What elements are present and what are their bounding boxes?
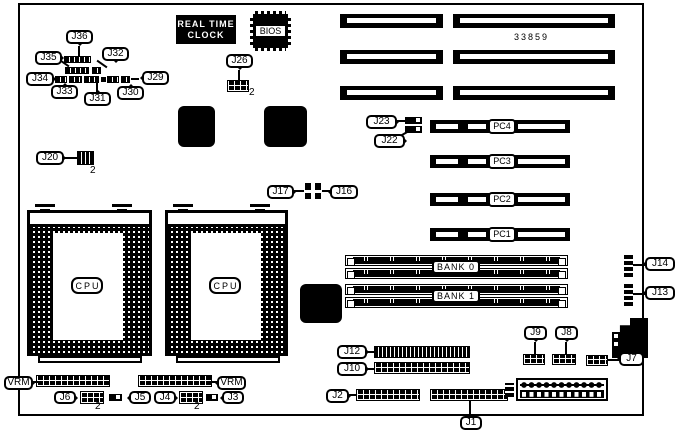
- callout-j22: J22: [374, 134, 405, 148]
- connector-j7: [586, 355, 608, 366]
- pin2-j26: 2: [249, 88, 255, 98]
- isa-slot-1-right: [453, 14, 615, 28]
- callout-vrm-left: VRM: [4, 376, 33, 390]
- callout-j9: J9: [524, 326, 547, 340]
- connector-j16: [315, 183, 321, 199]
- pci-label-pc3: PC3: [488, 154, 516, 169]
- connector-j10: [374, 362, 470, 374]
- callout-j8: J8: [555, 326, 578, 340]
- callout-j29: J29: [142, 71, 169, 85]
- callout-j33: J33: [51, 85, 78, 99]
- connector-j8: [552, 354, 576, 365]
- isa-slot-2-left: [340, 50, 443, 64]
- pin2-j6: 2: [95, 402, 101, 412]
- rtc-line1: REAL TIME: [177, 19, 234, 30]
- connector-j17: [305, 183, 311, 199]
- pci-label-pc4: PC4: [488, 119, 516, 134]
- isa-slot-1-left: [340, 14, 443, 28]
- pci-label-pc1: PC1: [488, 227, 516, 242]
- pin2-j20: 2: [90, 166, 96, 176]
- callout-j30: J30: [117, 86, 144, 100]
- isa-slot-3-right: [453, 86, 615, 100]
- callout-j14: J14: [645, 257, 675, 271]
- connector-j26: [227, 80, 249, 92]
- connector-j5: [109, 394, 122, 401]
- connector-vrm-left: [36, 375, 110, 387]
- connector-j2: [356, 389, 420, 401]
- connector-j36: [64, 56, 91, 63]
- callout-j7: J7: [619, 352, 644, 366]
- callout-j17: J17: [267, 185, 294, 199]
- connector-row-b: [69, 76, 82, 83]
- bios-label: BIOS: [255, 25, 286, 37]
- pin2-j4: 2: [194, 402, 200, 412]
- callout-j26: J26: [226, 54, 253, 68]
- motherboard-diagram: J36 J35 J32 J34 J33 J31 J30 J29 REAL TIM…: [0, 0, 678, 436]
- connector-row-e: [107, 76, 119, 83]
- callout-j23: J23: [366, 115, 397, 129]
- connector-row-d: [101, 77, 106, 82]
- connector-j1: [430, 389, 508, 401]
- connector-j14: [624, 254, 633, 277]
- callout-j34: J34: [26, 72, 54, 86]
- connector-vrm-right: [138, 375, 212, 387]
- rtc-line2: CLOCK: [188, 30, 225, 41]
- callout-j13: J13: [645, 286, 675, 300]
- bank1-label: BANK 1: [432, 289, 480, 303]
- connector-j20: [77, 151, 94, 165]
- chip-2: [264, 106, 307, 147]
- connector-j13: [624, 283, 633, 306]
- callout-j20: J20: [36, 151, 64, 165]
- socket2-foot: [176, 356, 280, 363]
- pci-label-pc2: PC2: [488, 192, 516, 207]
- callout-j5: J5: [129, 391, 151, 404]
- callout-vrm-right: VRM: [217, 376, 246, 390]
- connector-j12: [374, 346, 470, 358]
- connector-j23: [405, 117, 422, 124]
- connector-row-c: [84, 76, 99, 83]
- callout-j36: J36: [66, 30, 93, 44]
- connector-j9: [523, 354, 545, 365]
- callout-j32: J32: [102, 47, 129, 61]
- cpu2-label: CPU: [209, 277, 241, 294]
- socket1-foot: [38, 356, 142, 363]
- part-number: 33859: [514, 32, 549, 42]
- chip-3: [300, 284, 342, 323]
- cpu1-label: CPU: [71, 277, 103, 294]
- callout-j4: J4: [154, 391, 176, 404]
- connector-j32: [92, 67, 101, 74]
- callout-j31: J31: [84, 92, 111, 106]
- callout-j12: J12: [337, 345, 367, 359]
- callout-j35: J35: [35, 51, 62, 65]
- callout-j10: J10: [337, 362, 367, 376]
- callout-j6: J6: [54, 391, 76, 404]
- chip-1: [178, 106, 215, 147]
- callout-j1: J1: [460, 416, 482, 430]
- bank0-label: BANK 0: [432, 260, 480, 274]
- isa-slot-2-right: [453, 50, 615, 64]
- callout-j3: J3: [222, 391, 244, 404]
- callout-j16: J16: [330, 185, 358, 199]
- callout-j2: J2: [326, 389, 349, 403]
- connector-j35: [65, 67, 89, 74]
- isa-slot-3-left: [340, 86, 443, 100]
- power-connector: [516, 378, 608, 401]
- connector-power-aux: [505, 383, 514, 397]
- rtc-chip: REAL TIME CLOCK: [176, 15, 236, 44]
